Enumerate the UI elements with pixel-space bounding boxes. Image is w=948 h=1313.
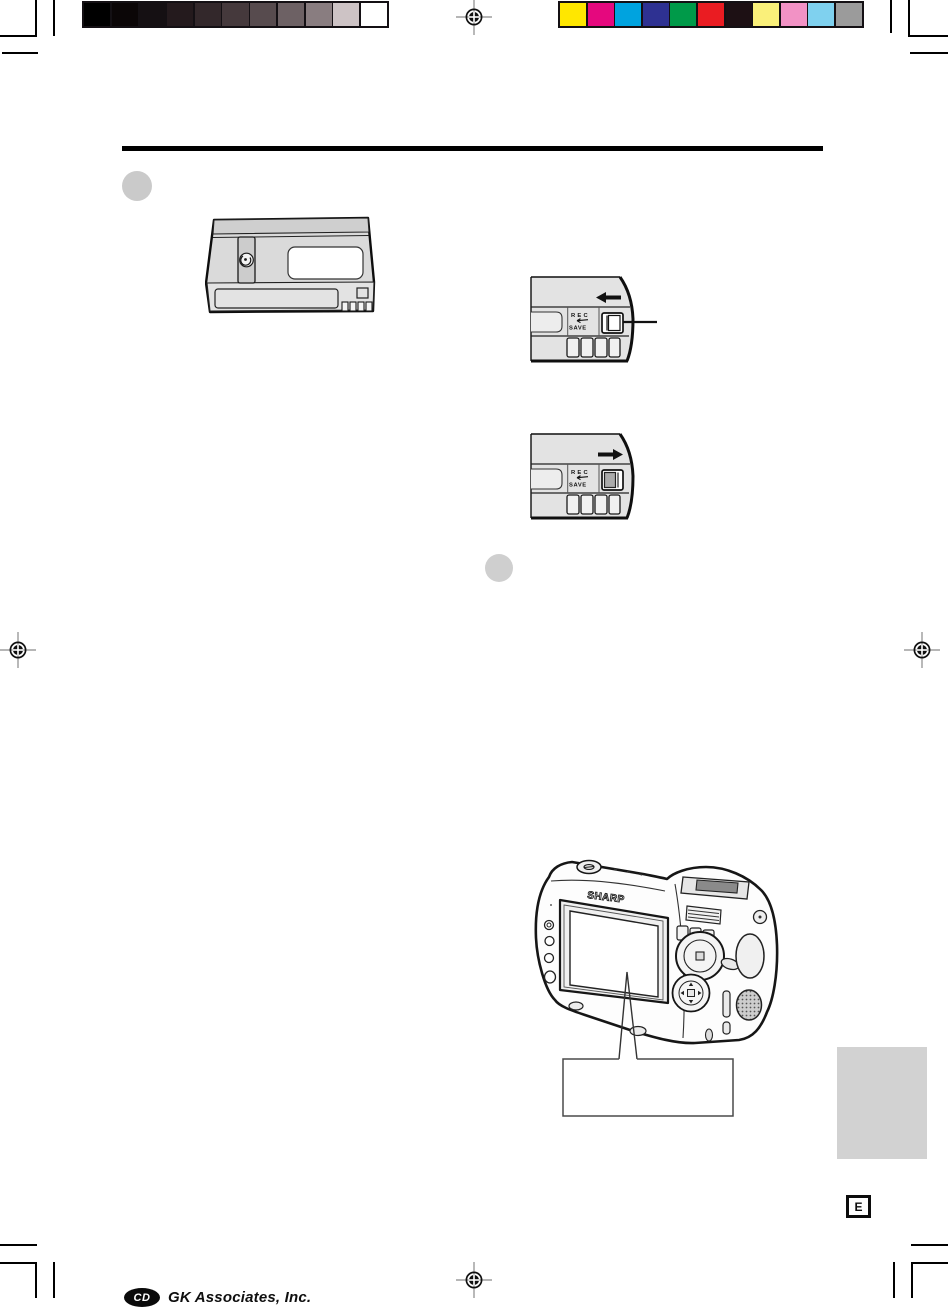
calibration-square [306,3,332,26]
registration-mark-icon [0,632,36,668]
calibration-square [250,3,276,26]
crop-mark [911,1244,948,1246]
crop-mark [890,0,892,33]
step-marker-2 [485,554,513,582]
crop-mark [53,1262,55,1298]
cassette-front-face [207,282,374,311]
calibration-square [222,3,248,26]
crop-mark [893,1262,895,1298]
calibration-square [726,3,752,26]
erase-tab-knob [605,473,616,488]
calibration-square [753,3,779,26]
crop-mark [908,0,910,36]
side-index-tab [837,1047,927,1159]
front-slot-partial [531,469,562,489]
bottom-teeth [567,495,620,514]
calibration-square [781,3,807,26]
calibration-square [112,3,138,26]
foot [630,1027,646,1036]
registration-mark-icon [904,632,940,668]
crop-mark [2,52,38,54]
crop-mark [0,35,37,37]
page-letter-marker: E [846,1195,871,1218]
cassette-label-area [288,247,363,279]
slider-switch [723,1022,730,1034]
footer: CD GK Associates, Inc. [124,1288,311,1307]
cassette-illustration [205,216,380,316]
slider-switch [723,991,730,1017]
color-strip [558,1,864,28]
crop-mark [0,1244,37,1246]
calibration-square [333,3,359,26]
calibration-square [278,3,304,26]
record-tab-rec-illustration: REC SAVE [528,274,660,366]
calibration-square [588,3,614,26]
calibration-square [698,3,724,26]
scanned-page: REC SAVE REC SAVE [0,0,948,1313]
rec-label: REC [571,313,590,319]
calibration-square [836,3,862,26]
calibration-square [670,3,696,26]
camcorder-illustration: SHARP [525,850,790,1122]
lcd-screen [570,911,658,997]
page-letter: E [854,1200,862,1214]
calibration-square [615,3,641,26]
calibration-square [643,3,669,26]
bottom-teeth [567,338,620,357]
crop-mark [35,1262,37,1298]
speaker-grille [737,990,762,1020]
registration-mark-icon [456,1262,492,1298]
save-label: SAVE [569,483,587,489]
callout-box [563,1059,733,1116]
stud [706,1029,713,1041]
calibration-square [84,3,110,26]
rec-label: REC [571,470,590,476]
calibration-square [195,3,221,26]
foot [569,1002,583,1010]
crop-mark [911,1262,948,1264]
crop-mark [35,0,37,36]
calibration-square [808,3,834,26]
gk-logo-icon: CD [124,1288,160,1307]
calibration-square [560,3,586,26]
save-label: SAVE [569,326,587,332]
grayscale-strip [82,1,389,28]
registration-mark-icon [456,0,492,35]
calibration-square [361,3,387,26]
calibration-square [139,3,165,26]
gk-logo-monogram: CD [134,1292,151,1304]
crop-mark [0,1262,37,1264]
footer-company: GK Associates, Inc. [168,1289,311,1306]
cassette-back-rim [213,218,369,234]
crop-mark [910,52,948,54]
record-tab-save-illustration: REC SAVE [528,431,660,523]
front-slot-partial [531,312,562,332]
crop-mark [908,35,948,37]
jack-cover [736,934,764,978]
step-marker-1 [122,171,152,201]
crop-mark [53,0,55,36]
crop-mark [911,1262,913,1298]
calibration-square [167,3,193,26]
header-rule [122,146,823,151]
